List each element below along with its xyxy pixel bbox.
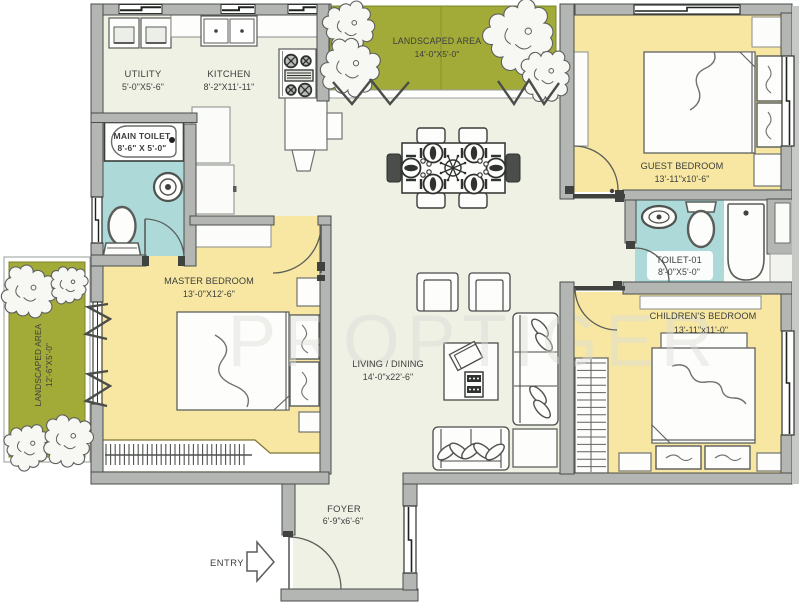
svg-text:MAIN TOILET: MAIN TOILET — [114, 131, 171, 141]
svg-text:LIVING / DINING: LIVING / DINING — [352, 359, 423, 369]
svg-text:MASTER BEDROOM: MASTER BEDROOM — [164, 276, 254, 286]
svg-text:13'-0"X12'-6": 13'-0"X12'-6" — [183, 289, 235, 299]
svg-text:14'-0"X5'-0": 14'-0"X5'-0" — [415, 49, 460, 59]
svg-text:8'-2"X11'-11": 8'-2"X11'-11" — [204, 82, 255, 92]
svg-text:14'-0"x22'-6": 14'-0"x22'-6" — [363, 372, 414, 382]
svg-text:TOILET-01: TOILET-01 — [656, 255, 702, 265]
svg-text:13'-11"x11'-0": 13'-11"x11'-0" — [674, 325, 728, 335]
svg-text:5'-0"X5'-6": 5'-0"X5'-6" — [122, 82, 164, 92]
svg-text:LANDSCAPED AREA: LANDSCAPED AREA — [34, 323, 43, 406]
svg-text:GUEST BEDROOM: GUEST BEDROOM — [641, 161, 724, 171]
svg-text:FOYER: FOYER — [327, 503, 361, 514]
svg-text:CHILDREN'S BEDROOM: CHILDREN'S BEDROOM — [650, 311, 757, 321]
svg-text:LANDSCAPED AREA: LANDSCAPED AREA — [393, 36, 482, 46]
svg-text:13'-11"x10'-6": 13'-11"x10'-6" — [655, 174, 710, 184]
svg-text:6'-9"x6'-6": 6'-9"x6'-6" — [323, 516, 364, 526]
svg-text:KITCHEN: KITCHEN — [207, 68, 250, 79]
svg-text:ENTRY: ENTRY — [210, 557, 244, 568]
svg-text:UTILITY: UTILITY — [125, 68, 162, 79]
svg-text:PROPTIGER: PROPTIGER — [228, 301, 721, 382]
svg-text:8'-6" X 5'-0": 8'-6" X 5'-0" — [118, 143, 167, 153]
svg-text:8'-0"X5'-0": 8'-0"X5'-0" — [658, 267, 700, 277]
svg-text:12'-6"X5'-0": 12'-6"X5'-0" — [45, 343, 54, 387]
